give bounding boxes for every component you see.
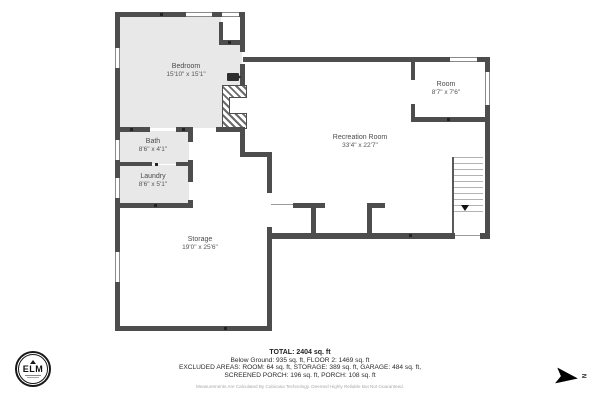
room-dims: 15'10" x 15'1" [136, 71, 236, 80]
room-name: Bedroom [136, 62, 236, 71]
room-name: Recreation Room [310, 133, 410, 142]
room-dims: 19'0" x 25'6" [150, 244, 250, 253]
wall [115, 326, 272, 331]
wall [411, 57, 415, 80]
wall [240, 12, 245, 52]
wall [188, 200, 193, 208]
room-label-recreation: Recreation Room 33'4" x 22'7" [310, 133, 410, 151]
bedroom-closet-area [221, 16, 242, 41]
room-name: Storage [150, 235, 250, 244]
dimension-tick [224, 327, 227, 330]
floor-plan-page: Bedroom 15'10" x 15'1" Bath 8'6" x 4'1" … [0, 0, 600, 400]
wall [219, 40, 245, 45]
room-label-room: Room 8'7" x 7'6" [396, 80, 496, 98]
wall [411, 117, 490, 122]
room-dims: 8'7" x 7'6" [396, 89, 496, 98]
wall [267, 227, 272, 331]
room-label-bath: Bath 8'6" x 4'1" [103, 137, 203, 155]
stair-direction-arrow [461, 205, 469, 211]
dimension-tick [155, 163, 158, 166]
excluded-areas-text: EXCLUDED AREAS: ROOM: 64 sq. ft, STORAGE… [0, 364, 600, 371]
wall [115, 203, 190, 208]
porch-areas-text: SCREENED PORCH: 196 sq. ft, PORCH: 108 s… [0, 372, 600, 379]
dimension-tick [130, 128, 133, 131]
room-label-storage: Storage 19'0" x 25'6" [150, 235, 250, 253]
dimension-tick [160, 13, 163, 16]
dimension-tick [182, 128, 185, 131]
area-summary: TOTAL: 2404 sq. ft Below Ground: 935 sq.… [0, 349, 600, 389]
floor-areas-text: Below Ground: 935 sq. ft, FLOOR 2: 1469 … [0, 357, 600, 364]
chimney-box [229, 97, 247, 114]
room-label-laundry: Laundry 8'6" x 5'1" [103, 172, 203, 190]
total-area-text: TOTAL: 2404 sq. ft [0, 349, 600, 356]
wall [480, 233, 490, 239]
room-dims: 33'4" x 22'7" [310, 142, 410, 151]
room-dims: 8'6" x 4'1" [103, 146, 203, 155]
dimension-tick [228, 41, 231, 44]
room-dims: 8'6" x 5'1" [103, 181, 203, 190]
wall [367, 203, 372, 234]
wall [485, 105, 490, 239]
room-name: Laundry [103, 172, 203, 181]
dimension-tick [409, 234, 412, 237]
threshold [455, 235, 480, 236]
room-name: Bath [103, 137, 203, 146]
wall [118, 162, 152, 166]
wall [311, 203, 316, 234]
logo-inner-ring [18, 354, 48, 384]
disclaimer-text: Measurements Are Calculated By Cubicasa … [0, 384, 600, 389]
room-name: Room [396, 80, 496, 89]
window [186, 12, 212, 17]
elm-logo: ELM [15, 351, 51, 387]
wall [243, 57, 450, 62]
wall [267, 152, 272, 193]
dimension-tick [447, 118, 450, 121]
wall [293, 203, 325, 208]
wall [240, 127, 245, 155]
north-label: N [580, 374, 586, 378]
dimension-tick [154, 204, 157, 207]
window [450, 57, 477, 62]
wall [485, 57, 490, 72]
room-label-bedroom: Bedroom 15'10" x 15'1" [136, 62, 236, 80]
window [115, 48, 120, 68]
threshold [271, 204, 293, 205]
staircase-landing [452, 213, 483, 233]
window [222, 12, 239, 17]
wall [267, 233, 455, 239]
window [115, 252, 120, 282]
